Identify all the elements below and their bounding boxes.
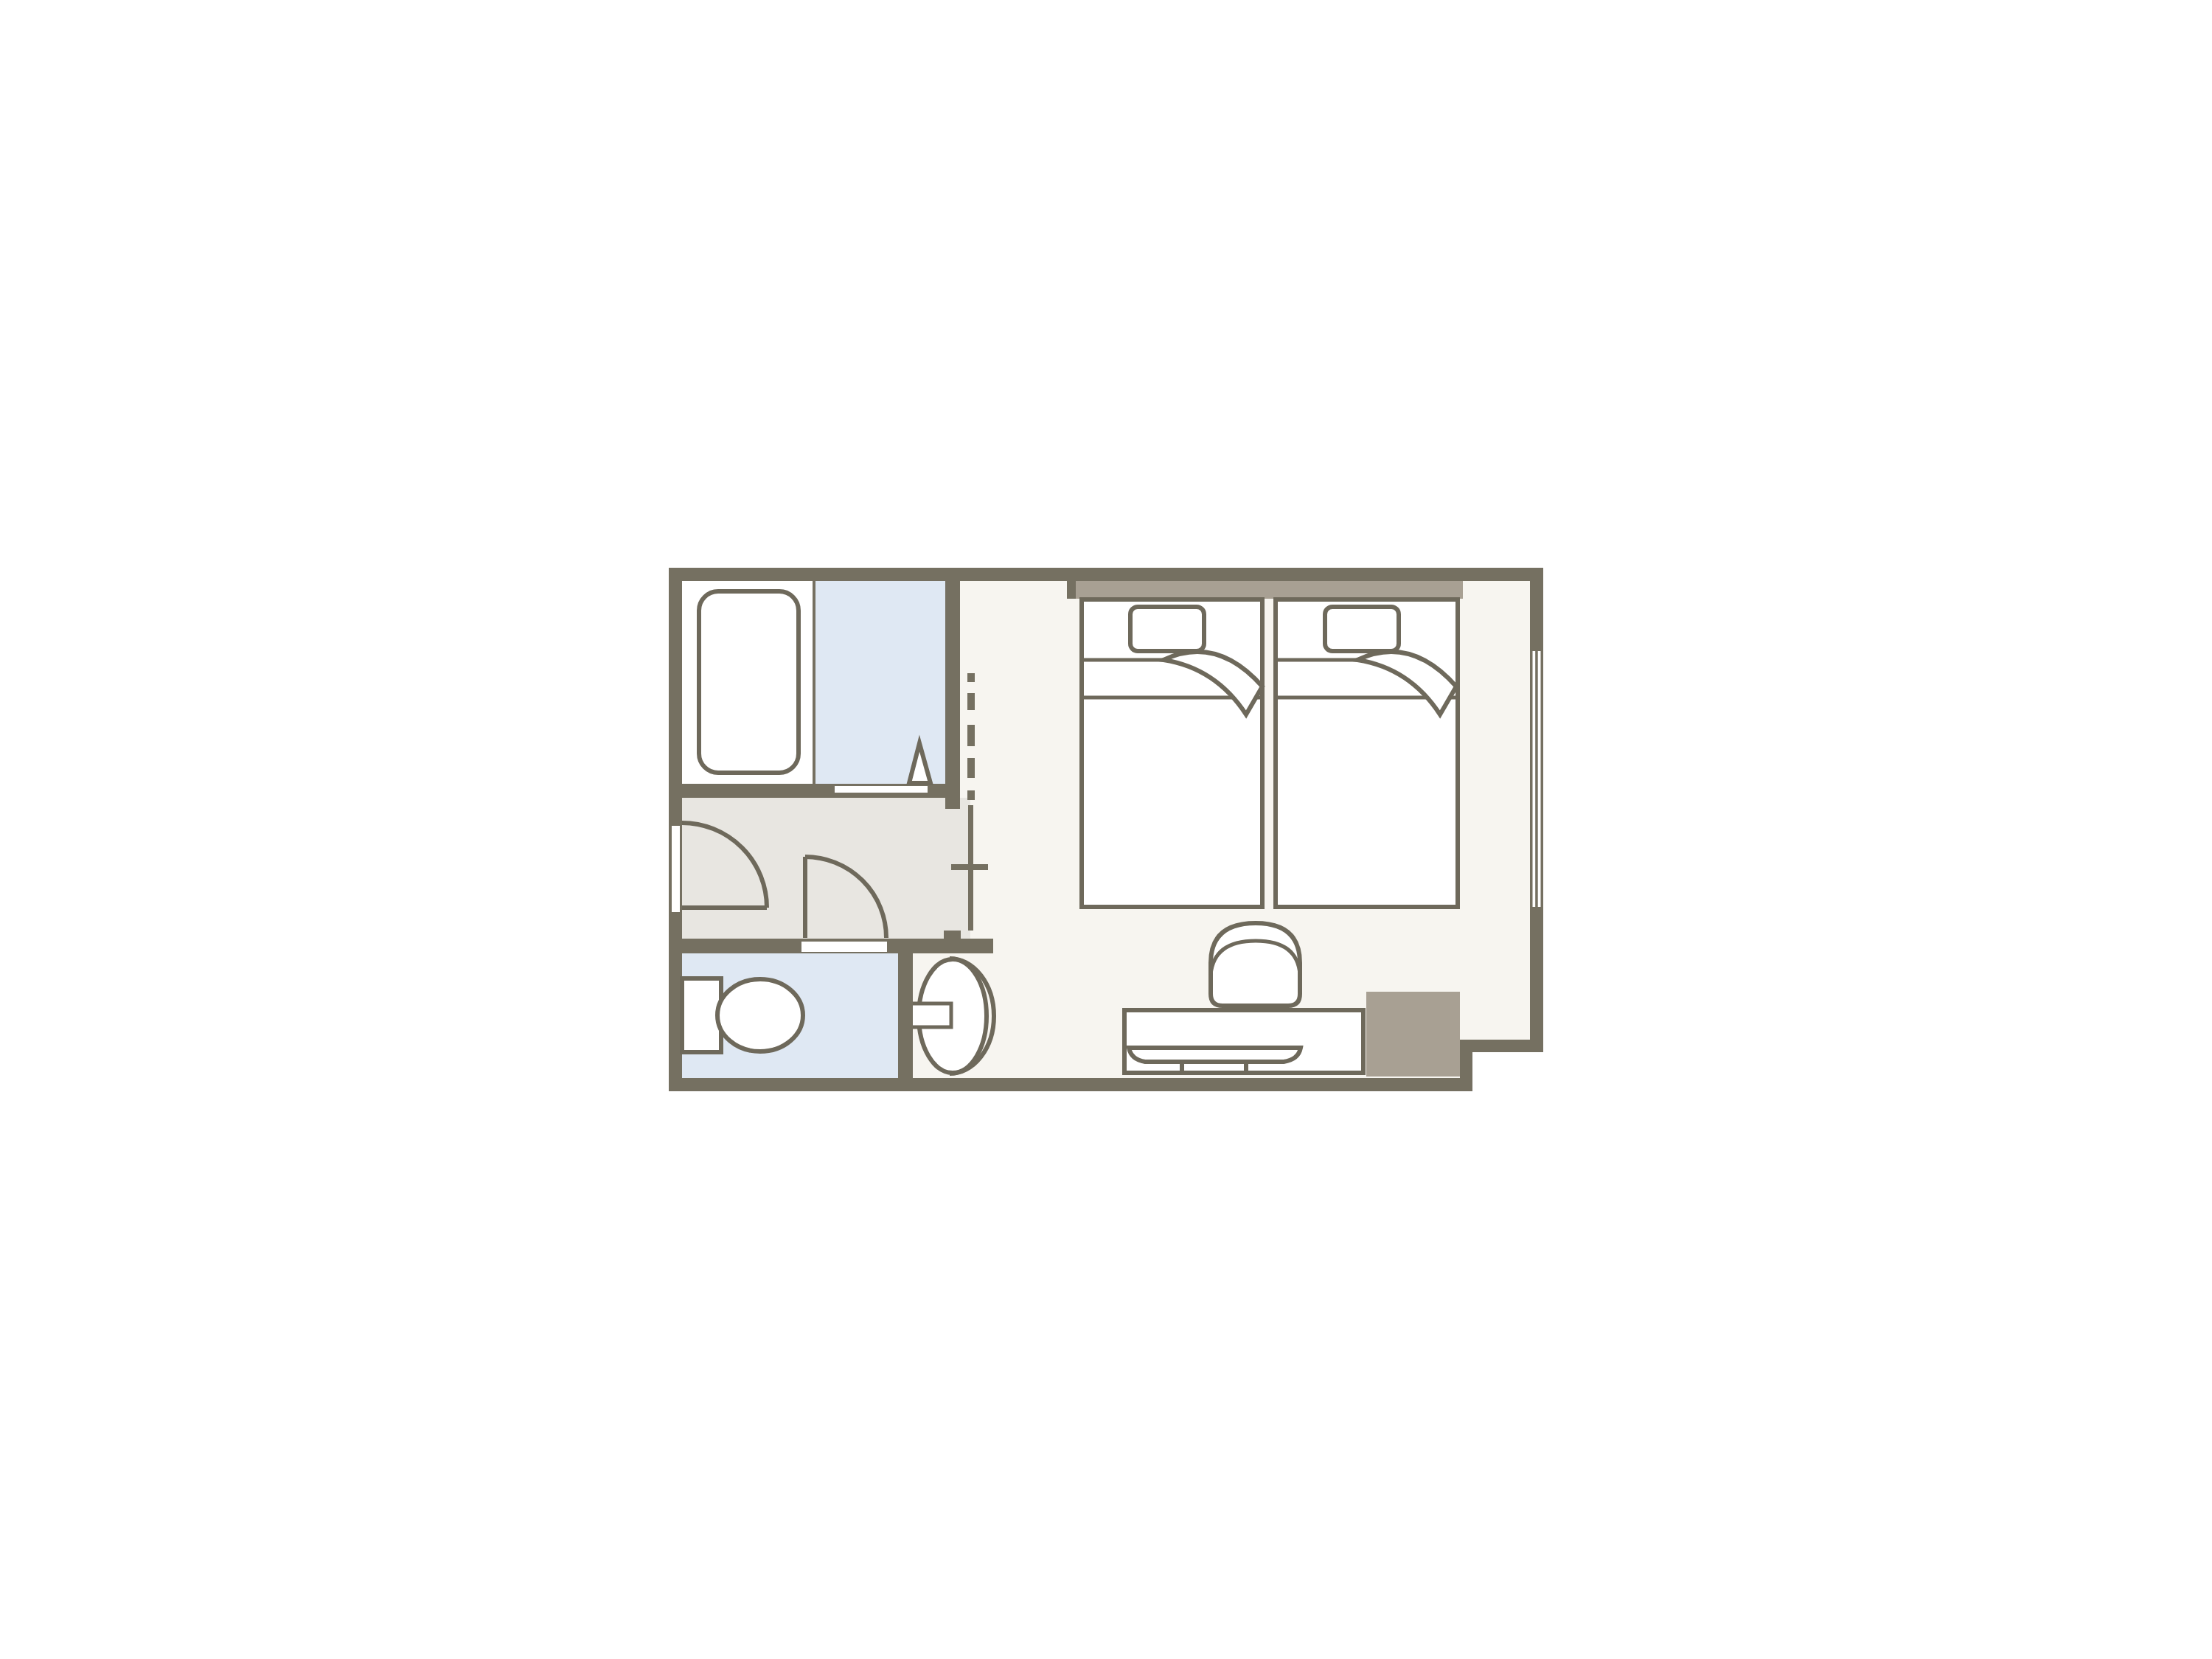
wall-right-lower xyxy=(1530,907,1543,1052)
wall-bathroom-right xyxy=(945,581,960,809)
wall-bottom xyxy=(669,1078,1472,1091)
chair-body xyxy=(1211,923,1300,1006)
floor-plan xyxy=(0,0,2212,1659)
outside-notch xyxy=(1472,1052,1543,1078)
window-line-middle xyxy=(1535,651,1538,907)
dash-2 xyxy=(967,693,975,710)
pillow xyxy=(1130,607,1204,651)
headboard xyxy=(1067,581,1463,599)
window xyxy=(1530,651,1543,907)
wall-toilet-right xyxy=(898,939,913,1078)
entry-door-opening xyxy=(672,826,680,912)
step-line-tick xyxy=(951,864,988,870)
wall-notch-horizontal xyxy=(1460,1040,1543,1052)
window-line-outer xyxy=(1530,651,1533,907)
bathtub xyxy=(699,591,799,773)
chair xyxy=(1211,923,1300,1006)
toilet-bowl xyxy=(717,979,803,1051)
wall-stub xyxy=(944,931,961,939)
window-line-inner xyxy=(1541,651,1544,907)
wall-notch-vertical xyxy=(1460,1052,1472,1078)
dash-3 xyxy=(967,725,975,746)
dash-5 xyxy=(967,790,975,800)
cabinet xyxy=(1366,992,1460,1077)
washbasin-faucet-fill xyxy=(913,1004,951,1027)
twin-bed-left xyxy=(1082,599,1262,907)
bathroom-door-opening xyxy=(835,786,928,793)
dash-1 xyxy=(967,673,975,682)
tv-stand xyxy=(1182,1062,1246,1073)
shower-zone-floor xyxy=(813,581,945,784)
wall-top xyxy=(669,568,1543,581)
desk xyxy=(1124,1010,1363,1073)
pillow xyxy=(1325,607,1399,651)
bath-zone-divider xyxy=(813,581,815,784)
headboard-endcap xyxy=(1067,581,1076,599)
toilet-door-opening xyxy=(801,942,887,952)
dash-4 xyxy=(967,758,975,778)
floor-plan-page xyxy=(0,0,2212,1659)
hallway-floor xyxy=(682,798,970,939)
wall-right-upper xyxy=(1530,568,1543,651)
toilet xyxy=(682,978,803,1052)
twin-bed-right xyxy=(1276,599,1458,907)
